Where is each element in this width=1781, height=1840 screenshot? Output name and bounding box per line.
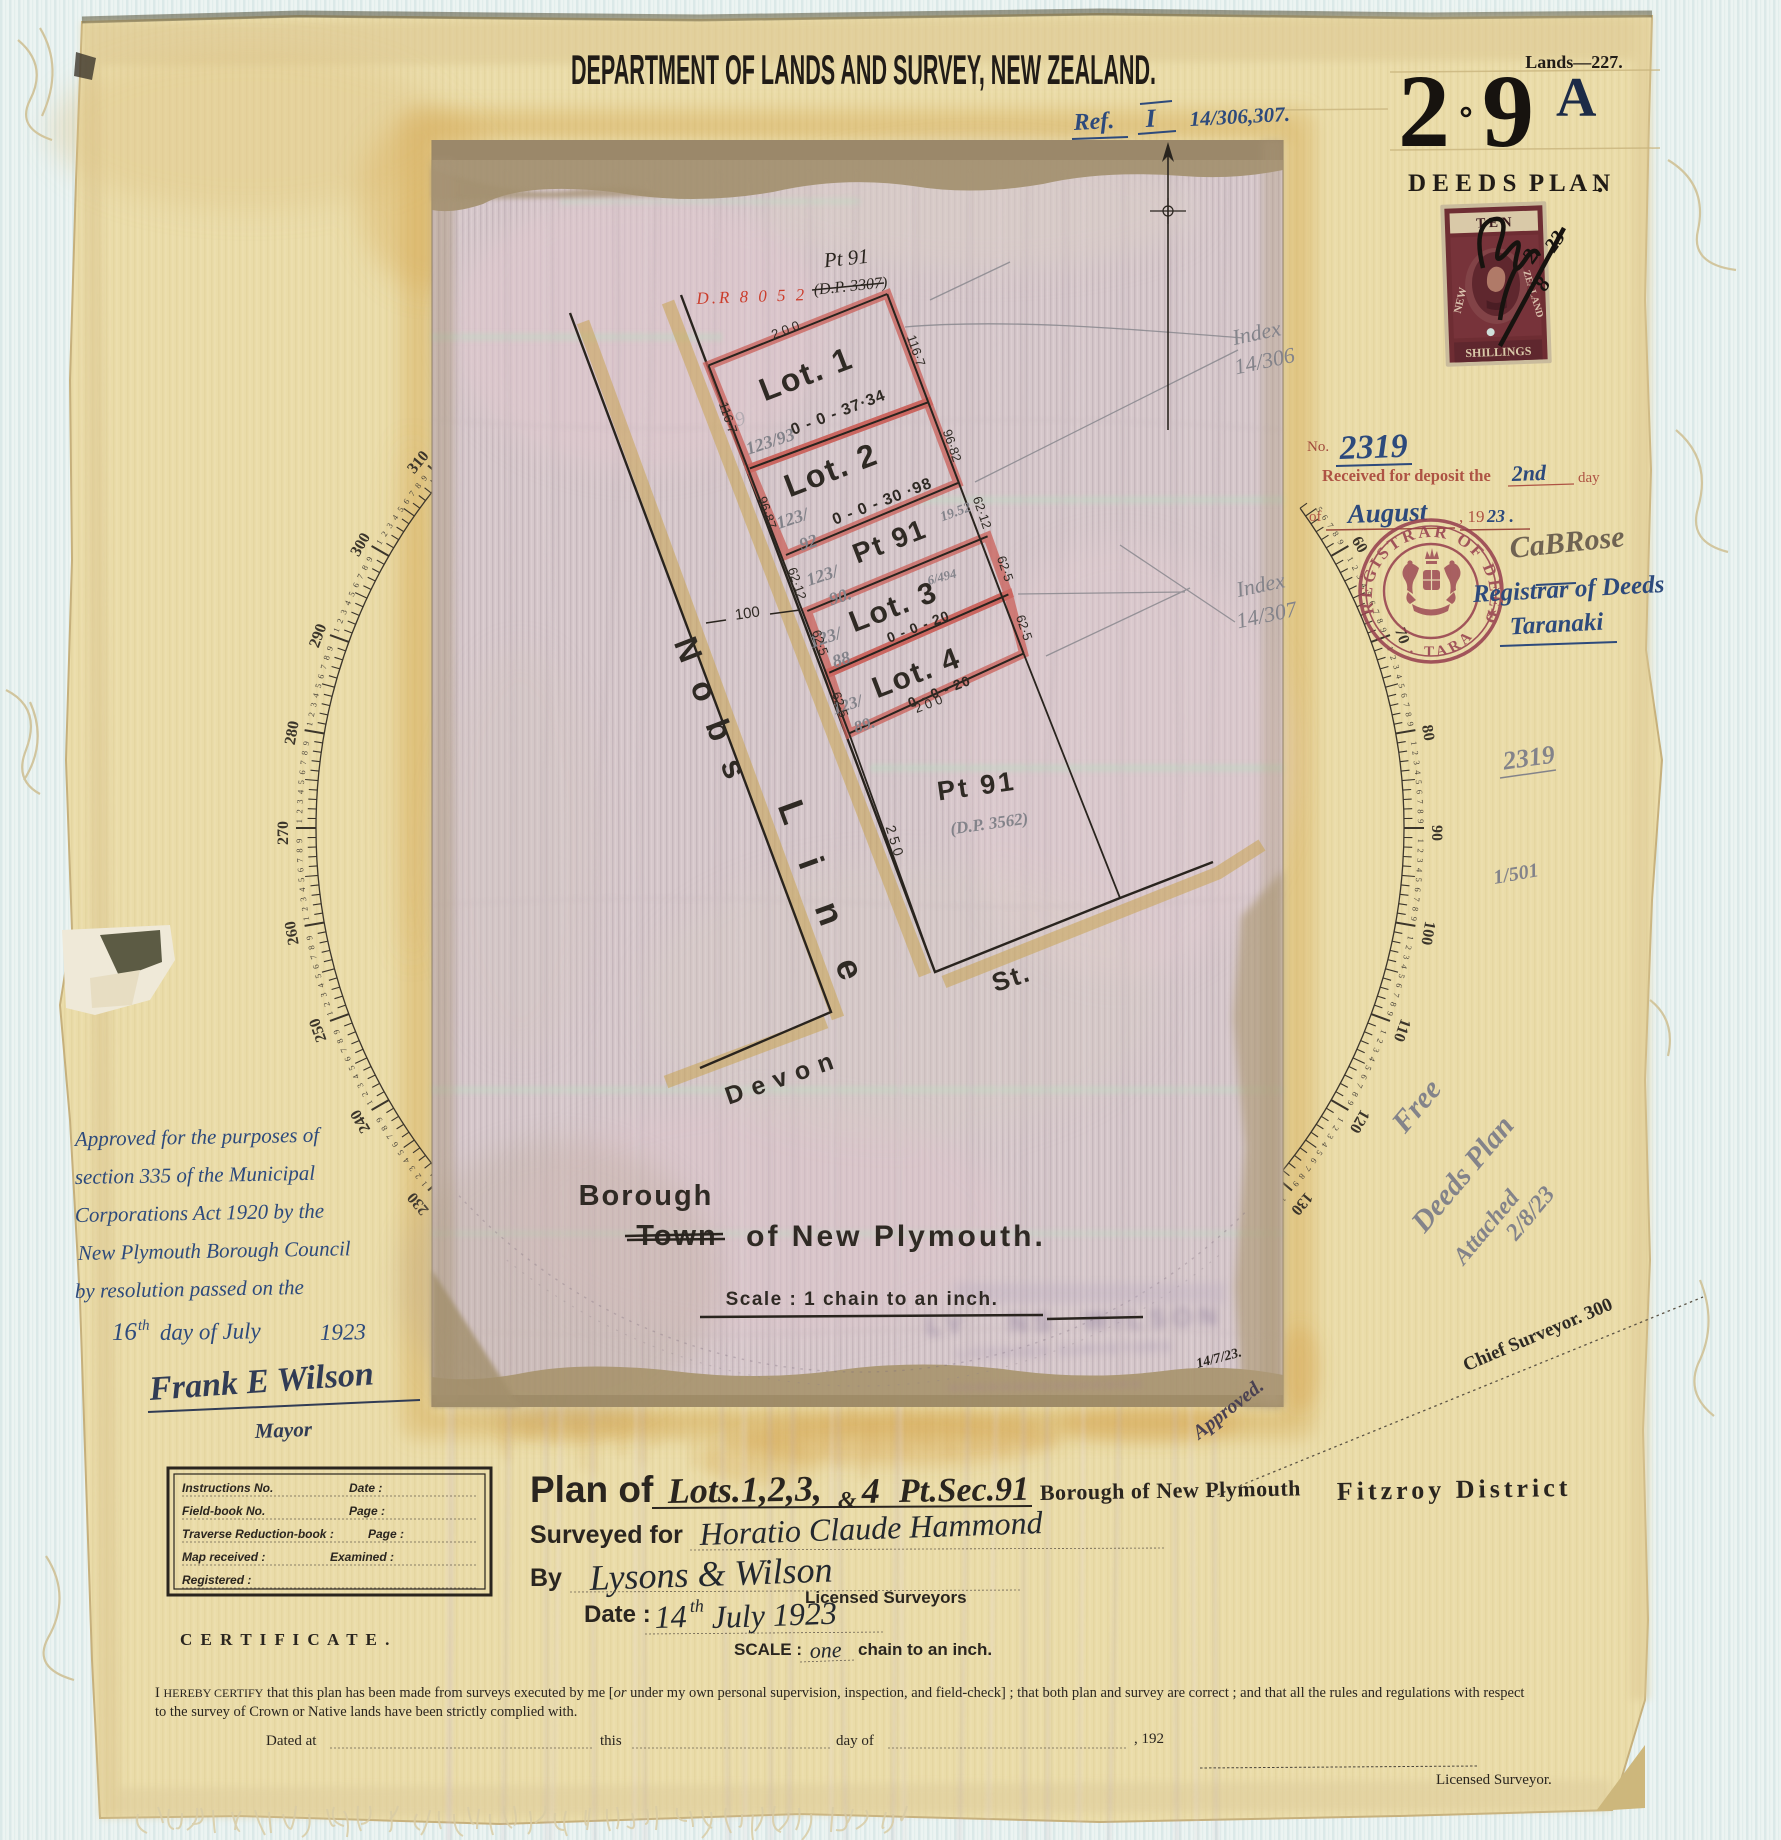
svg-text:to the survey of Crown or Nati: to the survey of Crown or Native lands h… bbox=[155, 1704, 577, 1720]
svg-text:90: 90 bbox=[1428, 825, 1445, 841]
svg-text:By: By bbox=[530, 1564, 562, 1592]
svg-text:6: 6 bbox=[295, 868, 305, 873]
svg-text:Date :: Date : bbox=[349, 1481, 382, 1495]
svg-text:D.R 8 0 5 2: D.R 8 0 5 2 bbox=[695, 285, 808, 308]
svg-text:Date :: Date : bbox=[584, 1601, 651, 1628]
svg-text:7: 7 bbox=[1415, 799, 1425, 804]
svg-text:by resolution passed on the: by resolution passed on the bbox=[75, 1275, 304, 1303]
svg-text:Mayor: Mayor bbox=[253, 1417, 313, 1443]
svg-text:, 19: , 19 bbox=[1459, 507, 1485, 526]
svg-text:Corporations Act 1920 by the: Corporations Act 1920 by the bbox=[75, 1199, 325, 1227]
svg-text:Borough of New Plymouth: Borough of New Plymouth bbox=[1040, 1475, 1301, 1505]
svg-text:Licensed Surveyor.: Licensed Surveyor. bbox=[1436, 1772, 1552, 1788]
svg-text:Lots.1,2,3,: Lots.1,2,3, bbox=[666, 1468, 822, 1511]
svg-text:4: 4 bbox=[860, 1471, 880, 1511]
svg-text:5: 5 bbox=[296, 780, 306, 785]
svg-text:Borough: Borough bbox=[579, 1180, 714, 1212]
svg-text:Surveyed for: Surveyed for bbox=[530, 1521, 683, 1549]
svg-text:SHILLINGS: SHILLINGS bbox=[1465, 344, 1532, 360]
svg-text:Scale : 1 chain to an inch.: Scale : 1 chain to an inch. bbox=[726, 1289, 999, 1310]
svg-text:80: 80 bbox=[1418, 724, 1438, 743]
svg-text:5: 5 bbox=[1414, 877, 1424, 882]
svg-text:3: 3 bbox=[295, 799, 305, 804]
svg-text:100: 100 bbox=[734, 603, 761, 623]
svg-text:23 .: 23 . bbox=[1486, 506, 1514, 526]
svg-text:Map received :: Map received : bbox=[182, 1550, 265, 1564]
svg-text:16: 16 bbox=[112, 1319, 138, 1346]
svg-text:of New Plymouth.: of New Plymouth. bbox=[746, 1220, 1046, 1253]
svg-text:2: 2 bbox=[1416, 848, 1426, 853]
svg-text:day of: day of bbox=[836, 1733, 874, 1749]
svg-text:Taranaki: Taranaki bbox=[1509, 609, 1604, 641]
svg-text:August: August bbox=[1345, 496, 1429, 529]
svg-text:Fitzroy District: Fitzroy District bbox=[1337, 1473, 1572, 1506]
svg-text:Registered :: Registered : bbox=[182, 1573, 251, 1587]
svg-text:7: 7 bbox=[295, 858, 305, 863]
svg-text:Lysons & Wilson: Lysons & Wilson bbox=[588, 1550, 833, 1598]
svg-text:5: 5 bbox=[296, 877, 306, 882]
svg-text:9: 9 bbox=[294, 839, 304, 843]
svg-text:one: one bbox=[809, 1637, 842, 1663]
svg-text:section 335 of the Municipal: section 335 of the Municipal bbox=[75, 1161, 316, 1189]
svg-text:✶: ✶ bbox=[1487, 606, 1498, 621]
svg-text:Instructions No.: Instructions No. bbox=[182, 1481, 273, 1495]
svg-text:Page :: Page : bbox=[368, 1527, 404, 1541]
svg-text:Ref.: Ref. bbox=[1072, 108, 1115, 136]
svg-text:A: A bbox=[1556, 67, 1597, 129]
svg-text:2319: 2319 bbox=[1338, 428, 1408, 467]
svg-text:2: 2 bbox=[1398, 54, 1450, 169]
svg-text:Pt.Sec.91: Pt.Sec.91 bbox=[897, 1471, 1029, 1510]
svg-text:th: th bbox=[138, 1318, 150, 1334]
svg-text:chain to an inch.: chain to an inch. bbox=[858, 1640, 992, 1659]
svg-text:, 192: , 192 bbox=[1134, 1731, 1164, 1747]
svg-text:DEPARTMENT OF LANDS AND SURVEY: DEPARTMENT OF LANDS AND SURVEY, NEW ZEAL… bbox=[571, 46, 1156, 93]
svg-text:July 1923: July 1923 bbox=[711, 1595, 837, 1635]
svg-text:Field-book No.: Field-book No. bbox=[182, 1504, 265, 1518]
svg-text:9: 9 bbox=[1416, 819, 1426, 823]
svg-text:Dated at: Dated at bbox=[266, 1733, 317, 1749]
svg-text:8: 8 bbox=[294, 848, 304, 853]
svg-text:Received for deposit the: Received for deposit the bbox=[1322, 466, 1491, 485]
svg-text:day: day bbox=[1578, 470, 1600, 486]
svg-text:1: 1 bbox=[294, 819, 304, 823]
svg-text:2: 2 bbox=[294, 809, 304, 814]
svg-text:Traverse Reduction-book :: Traverse Reduction-book : bbox=[182, 1527, 334, 1541]
svg-text:2nd: 2nd bbox=[1510, 460, 1547, 486]
svg-text:day of July: day of July bbox=[160, 1318, 262, 1345]
svg-text:Approved for the purposes of: Approved for the purposes of bbox=[73, 1123, 323, 1151]
svg-text:Page :: Page : bbox=[349, 1504, 385, 1518]
svg-text:14: 14 bbox=[654, 1598, 687, 1635]
svg-text:5: 5 bbox=[1414, 780, 1424, 785]
svg-text:1: 1 bbox=[1416, 839, 1426, 843]
svg-text:270: 270 bbox=[275, 821, 292, 845]
svg-text:Plan of: Plan of bbox=[530, 1469, 654, 1510]
svg-text:th: th bbox=[689, 1596, 704, 1616]
svg-text:D E E D S P L A N: D E E D S P L A N bbox=[1408, 170, 1610, 197]
svg-text:9: 9 bbox=[1482, 54, 1534, 169]
svg-text:No.: No. bbox=[1307, 439, 1329, 455]
svg-text:3: 3 bbox=[1415, 858, 1425, 863]
svg-text:Examined :: Examined : bbox=[330, 1550, 394, 1564]
svg-text:of: of bbox=[1309, 509, 1322, 525]
svg-text:this: this bbox=[600, 1733, 622, 1749]
svg-text:Pt 91: Pt 91 bbox=[822, 244, 870, 273]
svg-text:C E R T I F I C A T E .: C E R T I F I C A T E . bbox=[180, 1630, 391, 1649]
svg-text:6: 6 bbox=[1414, 789, 1424, 794]
svg-text:8: 8 bbox=[1416, 809, 1426, 814]
svg-text:SCALE :: SCALE : bbox=[734, 1640, 802, 1659]
svg-text:1923: 1923 bbox=[320, 1319, 366, 1345]
svg-text:New Plymouth Borough Council: New Plymouth Borough Council bbox=[77, 1236, 351, 1265]
svg-text:I HEREBY CERTIFY that this pla: I HEREBY CERTIFY that this plan has been… bbox=[155, 1685, 1524, 1701]
